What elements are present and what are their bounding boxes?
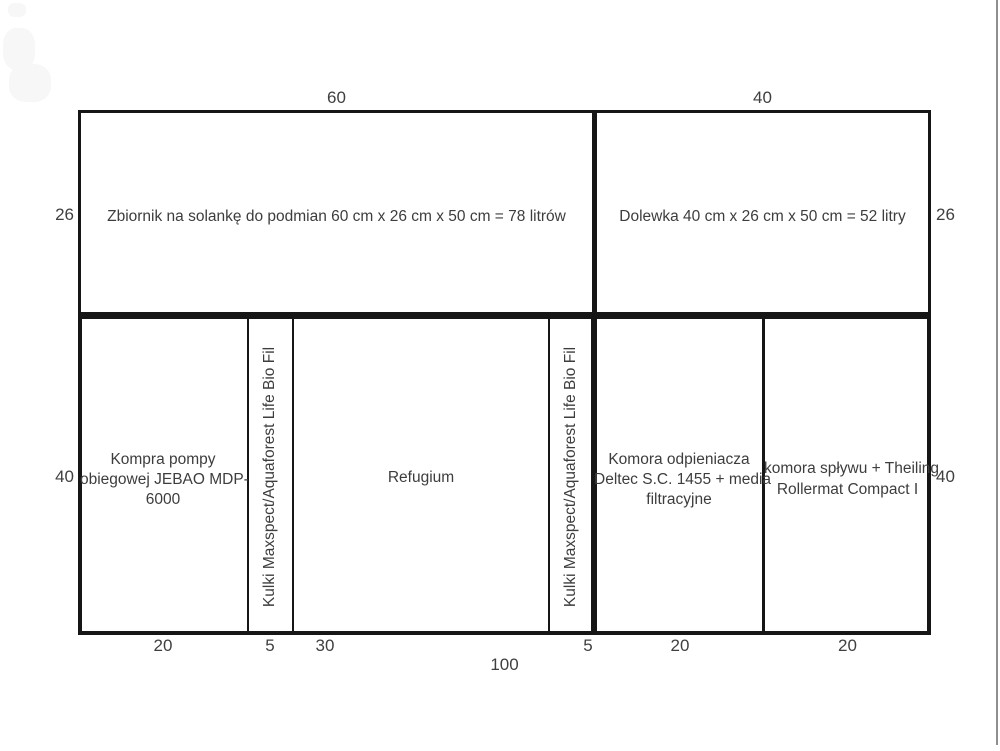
overflow-label-line: komora spływu + Theiling <box>764 458 931 479</box>
sump-height-label-left: 40 <box>44 468 74 485</box>
media-left-vertical-label: Kulki Maxspect/Aquaforest Life Bio Fil <box>261 347 279 607</box>
width-label-overflow: 20 <box>764 637 931 654</box>
refugium-compartment-label: Refugium <box>296 468 546 488</box>
top-width-label-brine: 60 <box>78 89 595 106</box>
brine-height-label: 26 <box>44 206 74 223</box>
top-off-tank-label: Dolewka 40 cm x 26 cm x 50 cm = 52 litry <box>600 207 925 227</box>
width-label-pump: 20 <box>78 637 248 654</box>
scan-smudge <box>8 3 26 17</box>
scan-smudge <box>9 64 51 102</box>
pump-label-line: Kompra pompy <box>80 450 246 470</box>
width-label-refugium: 30 <box>294 637 356 654</box>
pump-compartment-label: Kompra pompy obiegowej JEBAO MDP- 6000 <box>80 450 246 510</box>
refugium-label-line: Refugium <box>296 468 546 488</box>
skimmer-label-line: Komora odpieniacza <box>594 450 764 470</box>
skimmer-label-line: filtracyjne <box>594 490 764 510</box>
topoff-height-label: 26 <box>936 206 970 223</box>
pump-label-line: 6000 <box>80 490 246 510</box>
skimmer-label-line: Deltec S.C. 1455 + media <box>594 470 764 490</box>
brine-tank-label: Zbiornik na solankę do podmian 60 cm x 2… <box>84 207 589 227</box>
skimmer-compartment-label: Komora odpieniacza Deltec S.C. 1455 + me… <box>594 450 764 510</box>
sump-diagram-page: 60 40 Zbiornik na solankę do podmian 60 … <box>0 0 1000 751</box>
sump-height-label-right: 40 <box>936 468 970 485</box>
top-width-label-topoff: 40 <box>594 89 931 106</box>
page-edge-line <box>996 0 998 745</box>
overflow-compartment-label: komora spływu + Theiling Rollermat Compa… <box>764 458 931 500</box>
media-right-vertical-label: Kulki Maxspect/Aquaforest Life Bio Fil <box>562 347 580 607</box>
divider-refugium-media <box>548 319 550 631</box>
width-label-media-left: 5 <box>248 637 292 654</box>
pump-label-line: obiegowej JEBAO MDP- <box>80 470 246 490</box>
overflow-label-line: Rollermat Compact I <box>764 479 931 500</box>
total-width-label: 100 <box>78 656 931 673</box>
divider-media-refugium <box>292 319 294 631</box>
width-label-skimmer: 20 <box>596 637 764 654</box>
